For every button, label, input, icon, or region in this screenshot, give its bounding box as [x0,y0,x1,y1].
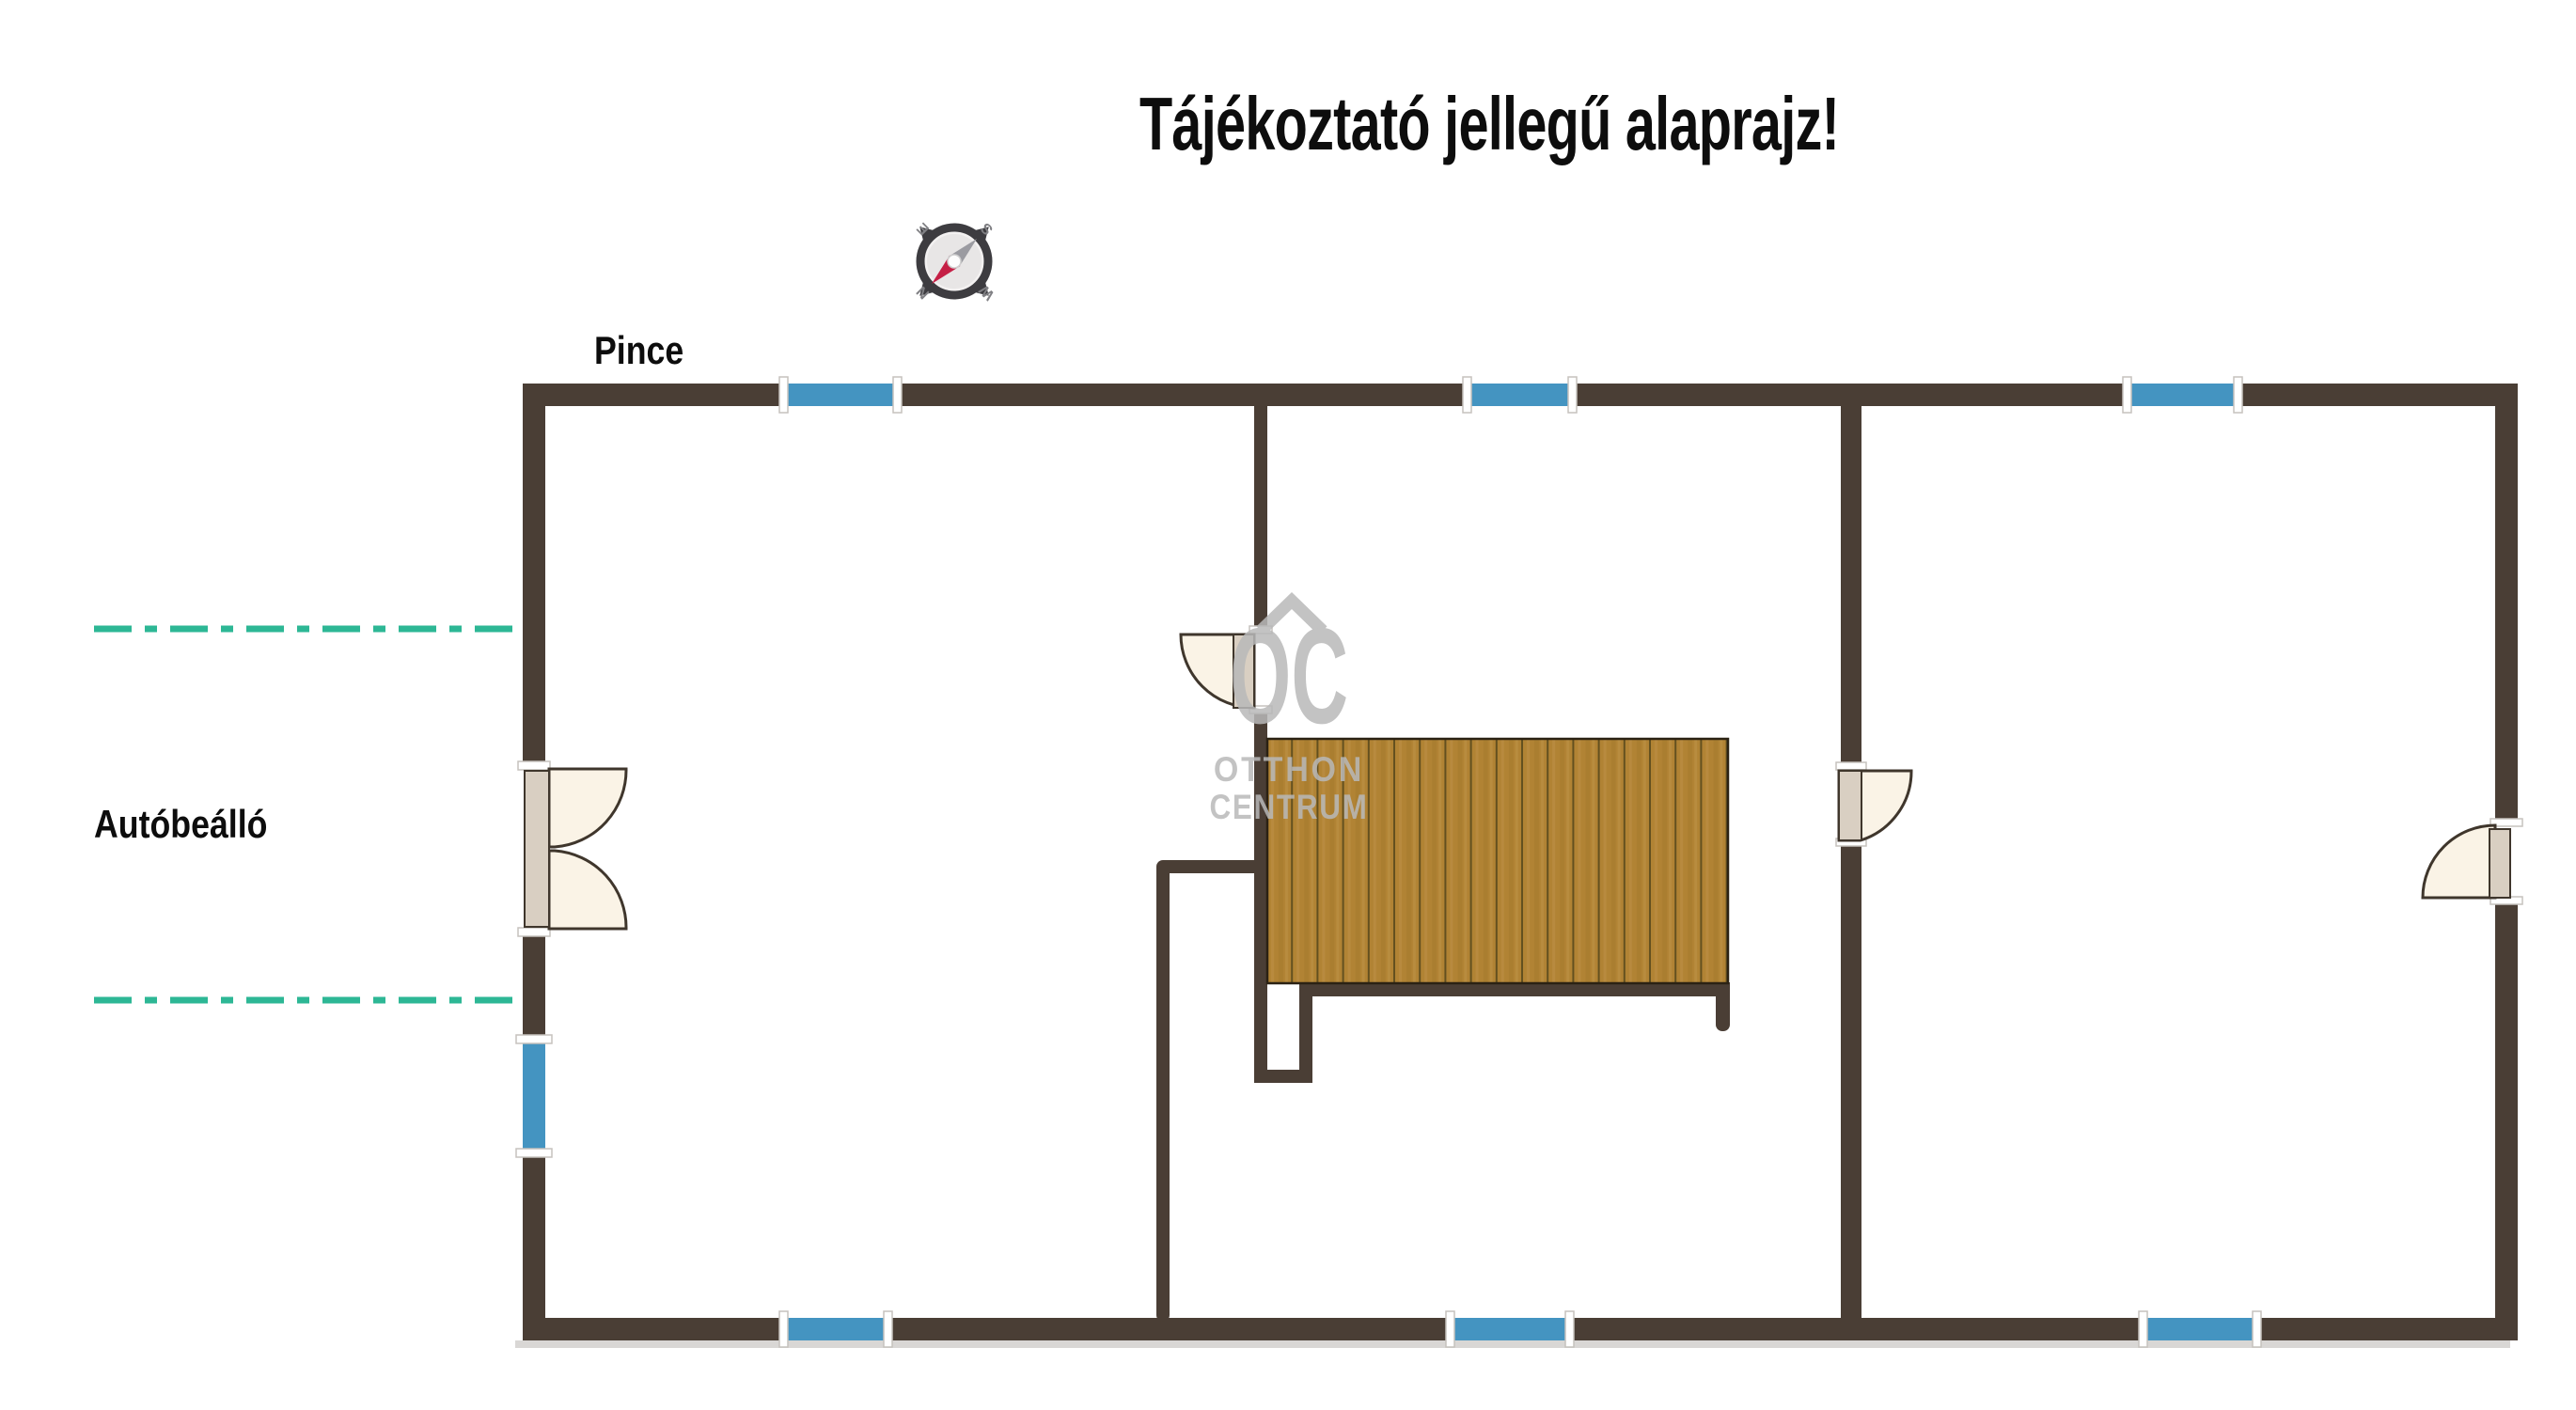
interior-wall-right-lower [1841,844,1861,1318]
window-top-left [788,384,893,406]
wall-shadow [515,1340,2510,1348]
compass-rose: N E S W [882,187,1029,335]
window-bracket [1463,377,1471,413]
door-leaf [1839,771,1861,840]
window-bracket [1565,1311,1574,1347]
stair-return-wall-right [1299,982,1312,1083]
window-bracket [1446,1311,1454,1347]
floor-label: Pince [594,331,683,370]
window-bracket [893,377,902,413]
window-bottom-right [2147,1318,2253,1340]
watermark-line2: CENTRUM [1209,789,1368,827]
window-bracket [2253,1311,2261,1347]
window-bottom-left [788,1318,884,1340]
divider-wall-stub [1163,860,1267,873]
interior-wall-right-upper [1841,406,1861,769]
outer-wall-right-lower [2495,901,2518,1318]
window-left-lower [523,1043,545,1149]
stair-return-wall-bottom [1254,1070,1312,1083]
window-bracket [516,1149,552,1157]
door-jamb [518,928,550,936]
page-title: Tájékoztató jellegű alaprajz! [1139,86,1839,162]
window-bracket [516,1035,552,1043]
door-jamb [1836,762,1866,770]
outer-wall-left-upper [523,384,545,768]
window-bracket [2139,1311,2147,1347]
watermark: OC OTTHON CENTRUM [1209,601,1368,827]
door-right-side-entry [2423,825,2510,898]
door-leaf [525,771,549,927]
outer-wall-left-lower [523,1149,545,1318]
door-leaf [2490,829,2510,898]
window-bottom-middle [1454,1318,1565,1340]
door-swing [2423,825,2495,898]
window-bracket [779,1311,788,1347]
door-jamb [518,761,550,770]
window-top-middle [1471,384,1568,406]
window-bracket [2234,377,2242,413]
door-swing-upper [549,769,626,847]
understair-wall-end-stub [1716,982,1730,1031]
divider-wall-vertical [1156,860,1170,1322]
window-bracket [779,377,788,413]
door-left-double-entry [525,769,626,929]
window-bracket [1568,377,1577,413]
window-bracket [2123,377,2131,413]
outer-wall-right-upper [2495,384,2518,825]
floor-plan-drawing: N E S W OC OTTHON CENTRUM [0,0,2576,1410]
window-bracket [884,1311,892,1347]
carport-label: Autóbeálló [94,805,267,844]
outer-wall-left-middle [523,931,545,1043]
door-interior-right-room [1839,771,1911,840]
interior-wall-left-upper [1254,406,1267,633]
door-swing-lower [549,851,626,929]
floor-plan-page: N E S W OC OTTHON CENTRUM Tájékoztató je… [0,0,2576,1410]
watermark-line1: OTTHON [1214,750,1364,790]
watermark-logo-text: OC [1230,601,1348,752]
window-top-right [2131,384,2234,406]
